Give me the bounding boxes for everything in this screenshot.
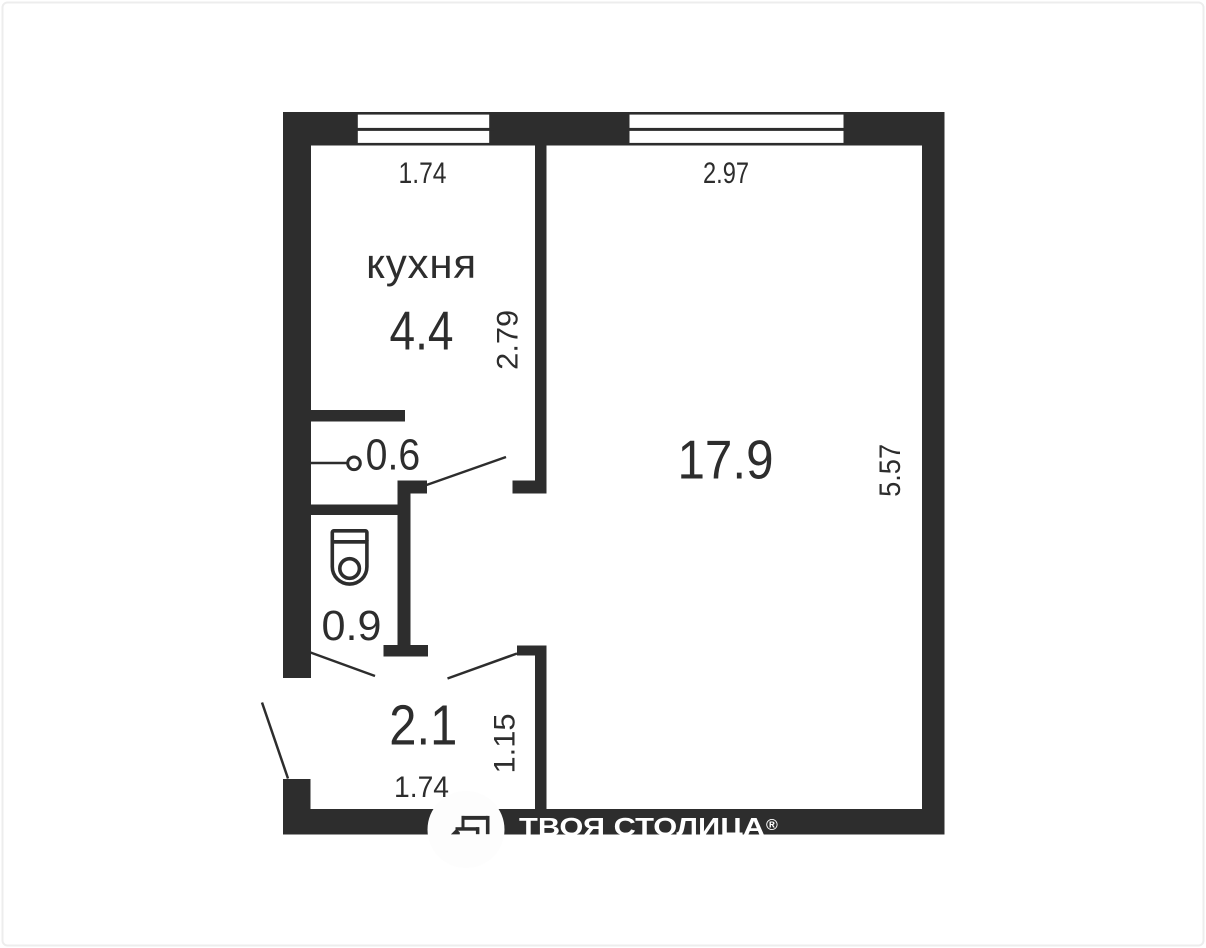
- svg-text:2.97: 2.97: [703, 157, 749, 190]
- svg-text:1.15: 1.15: [488, 714, 521, 774]
- svg-text:0.6: 0.6: [366, 430, 421, 479]
- svg-text:кухня: кухня: [366, 240, 477, 287]
- svg-text:5.57: 5.57: [874, 444, 907, 497]
- svg-text:17.9: 17.9: [678, 429, 774, 491]
- svg-text:0.9: 0.9: [322, 603, 382, 650]
- svg-text:2.79: 2.79: [492, 310, 525, 370]
- svg-text:1.74: 1.74: [394, 771, 449, 804]
- svg-text:ТВОЯ СТОЛИЦА: ТВОЯ СТОЛИЦА: [519, 814, 765, 842]
- svg-text:2.1: 2.1: [389, 694, 457, 758]
- svg-text:4.4: 4.4: [390, 299, 454, 361]
- svg-text:1.74: 1.74: [399, 157, 447, 190]
- svg-text:®: ®: [766, 817, 778, 834]
